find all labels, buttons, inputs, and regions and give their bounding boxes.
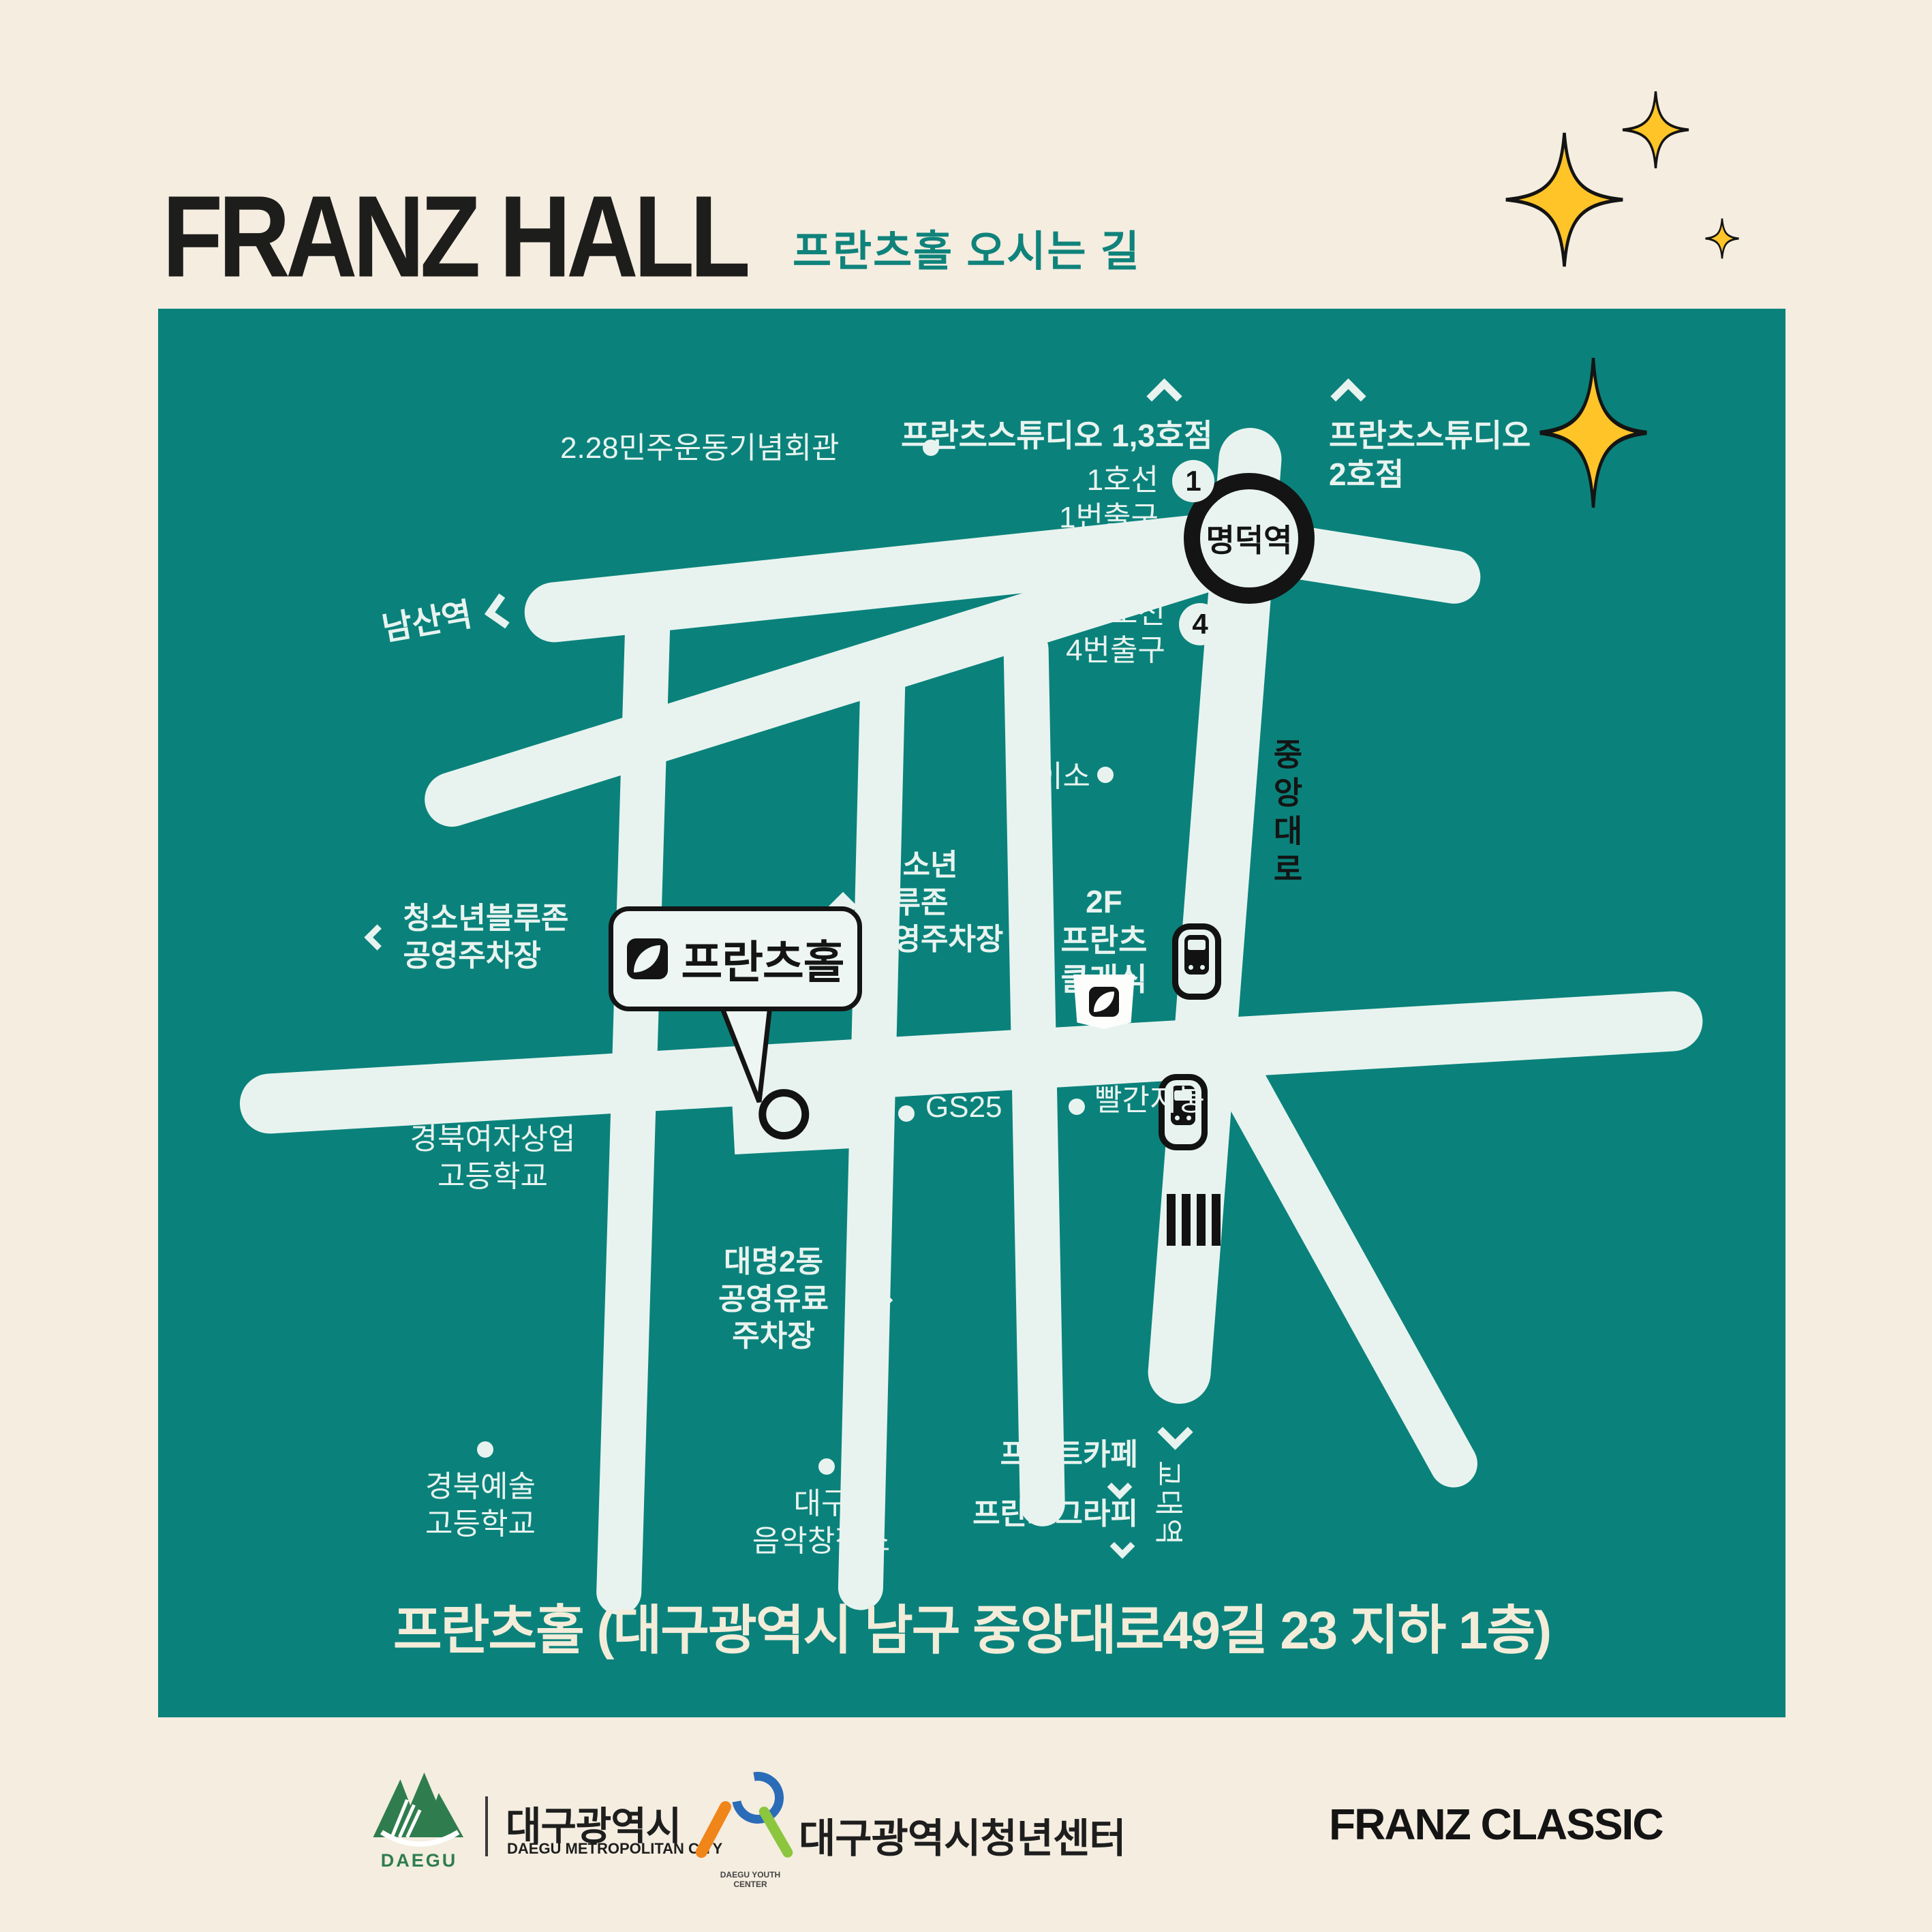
poi-franzgraphy: 프란츠그라피 [927,1496,1138,1533]
daegu-logo-text: DAEGU [368,1850,470,1871]
poi-art-hs-dot [477,1441,493,1458]
map-panel: 명덕역 1호선1번출구 1 3호선4번출구 4 2.28민주운동기념회관 프란츠… [158,309,1785,1717]
address-line: 프란츠홀 (대구광역시 남구 중앙대로49길 23 지하 1층) [158,1588,1785,1664]
franz-logo-icon [627,938,668,979]
line-1-badge: 1 [1172,460,1214,502]
youth-center-name: 대구광역시청년센터 [799,1806,1126,1864]
footer-divider [485,1796,488,1856]
franz-hall-callout-label: 프란츠홀 [681,926,844,992]
poi-music-center-dot [818,1458,835,1475]
chevron-up-icon [1330,378,1366,414]
bus-stop-icon [1172,923,1221,1000]
direction-kyodae-station: 교대역 [1150,1460,1191,1548]
page-subtitle: 프란츠홀 오시는 길 [793,217,1141,278]
sparkle-star-icon [1539,356,1648,509]
exit-4-label: 3호선4번출구 [995,595,1165,669]
sparkle-star-icon [1505,132,1624,268]
youth-center-logo-text: DAEGU YOUTH CENTER [706,1870,795,1889]
chevron-left-icon [485,594,520,629]
page-title: FRANZ HALL [162,170,746,304]
poi-daiso-dot [1097,767,1114,783]
daegu-mountains-icon [368,1769,470,1851]
poi-music-center: 대구음악창작소 [716,1486,927,1560]
direction-namsan: 남산역 [379,587,518,650]
sparkle-star-icon [1705,218,1739,259]
poi-red-roof-dot [1069,1099,1085,1115]
sparkle-star-icon [1622,91,1689,169]
chevron-down-icon [1157,1414,1193,1450]
franz-logo-icon [1089,987,1119,1017]
poster: FRANZ HALL 프란츠홀 오시는 길 명덕역 1호선1번출구 1 [0,0,1932,1932]
youth-center-logo [717,1772,785,1867]
poi-franz-studio-2: 프란츠스튜디오2호점 [1329,416,1531,494]
poi-daemyeong-parking: 대명2동 공영유료 주차장 [678,1244,869,1355]
crosswalk-icon [1167,1194,1221,1246]
poi-bluezone-west: 청소년블루존공영주차장 [368,900,568,975]
daegu-city-name-en: DAEGU METROPOLITAN CITY [507,1840,722,1858]
poi-girls-hs-dot [478,1094,494,1110]
callout-pointer [700,998,782,1107]
franz-classic-badge [1073,975,1135,1029]
chevron-left-icon [364,924,390,950]
exit-1-label: 1호선1번출구 [988,462,1159,536]
poi-franz-studio-13: 프란츠스튜디오 1,3호점 [901,416,1213,455]
poi-art-hs: 경북예술고등학교 [378,1469,583,1543]
poi-girls-hs: 경북여자상업고등학교 [384,1121,602,1195]
road-label-jungang-daero: 중앙대로 [1263,738,1308,891]
poi-gs25-dot [898,1105,915,1122]
line-3-badge: 4 [1179,603,1221,645]
chevron-up-icon [1146,378,1182,414]
chevron-down-icon [1110,1534,1135,1559]
poi-memorial: 2.28민주운동기념회관 [560,430,839,467]
poi-bluezone-center: 청소년 블루존 공영주차장 [865,847,1003,959]
poi-daiso: 다이소 [968,758,1090,796]
daegu-logo: DAEGU [368,1769,470,1871]
franz-hall-callout: 프란츠홀 [609,906,862,1011]
poi-red-roof: 빨간지붕 [1094,1082,1205,1120]
franz-classic-wordmark: FRANZ CLASSIC [1329,1799,1663,1850]
poi-gs25: GS25 [925,1089,1002,1126]
poi-print-cafe: 프린트카페 [940,1437,1138,1474]
road-diagonal-southeast [1202,1037,1486,1496]
